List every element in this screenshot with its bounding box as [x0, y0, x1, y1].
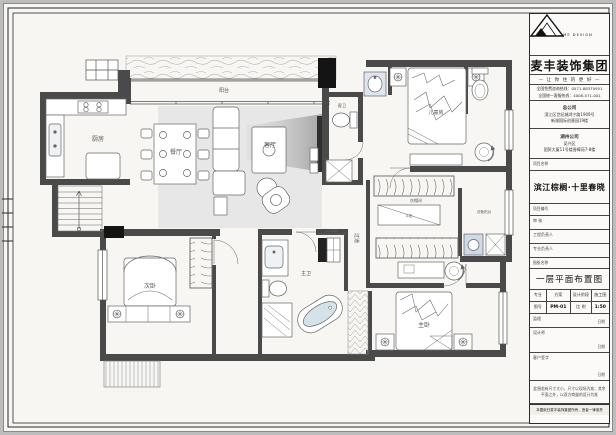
lead-row: 专业负责人	[530, 244, 609, 258]
room-label-kids: 儿童房	[428, 109, 443, 116]
branch-addr-line2: 国贸大厦11号楼香樟苑7-8楼	[544, 147, 596, 153]
title-block: MY HOME DESIGN 麦丰装饰集团 — 让 你 住 的 更 好 — 全国…	[529, 13, 610, 424]
table-cell-phase: 施工图	[592, 290, 609, 302]
supervisor-date-label: 日期	[597, 319, 605, 325]
branch-title: 湖州公司	[560, 134, 578, 141]
closet-hall	[374, 168, 466, 286]
room-label-second: 次卧	[144, 282, 156, 290]
bathtub	[293, 290, 347, 337]
second-bed	[124, 258, 176, 306]
room-label-living: 客厅	[264, 141, 276, 149]
floor-plan: 阳台 厨房 餐厅 客厅 客卫 斗柜 衣帽间 设备阳台 儿童房 主卧 次卧 主卫 …	[0, 0, 616, 435]
room-label-kitchen: 厨房	[92, 135, 104, 143]
client-date-label: 日期	[597, 372, 605, 378]
guest-bath	[326, 72, 386, 182]
table-cell-plan: 方案	[547, 290, 571, 302]
table-cell-discipline: 专业	[530, 290, 547, 302]
room-label-closet: 衣帽间	[410, 197, 423, 204]
table-cell-sheetno: PM-01	[547, 302, 571, 314]
drawing-name-label: 图纸名称	[530, 258, 609, 269]
herringbone-floor	[348, 291, 368, 354]
toilet-icon	[350, 112, 357, 128]
hotlines: 全国免费咨询热线：0571-88370951 全国统一客服热线：4008-571…	[530, 85, 609, 101]
designer-date-label: 日期	[597, 344, 605, 350]
review-row: 审 核	[530, 216, 609, 230]
shower-column	[318, 238, 327, 262]
kids-room	[390, 68, 495, 165]
ensuite-toilet	[472, 80, 488, 100]
hotline-2: 全国统一客服热线：4008-571-001	[538, 93, 601, 99]
sliding-window	[130, 102, 330, 105]
stairs	[58, 186, 102, 231]
second-door-arc	[214, 240, 238, 264]
second-wardrobe	[190, 238, 212, 288]
sofa	[213, 107, 239, 171]
drawing-sheet: 阳台 厨房 餐厅 客厅 客卫 斗柜 衣帽间 设备阳台 儿童房 主卧 次卧 主卫 …	[0, 0, 616, 435]
kitchen-furniture	[46, 99, 126, 179]
room-label-equipment: 设备阳台	[477, 209, 492, 214]
designer-label: 设计师	[533, 330, 545, 335]
pm-row: 工程负责人	[530, 230, 609, 244]
master-bed	[396, 292, 452, 350]
company-name: 麦丰装饰集团	[530, 56, 609, 75]
designer-sign: 设计师 日期	[530, 328, 609, 353]
elevation-marker: ±0.000	[325, 229, 339, 233]
room-label-guest-bath: 客卫	[338, 102, 346, 109]
room-label-master-bath: 主卫	[301, 270, 311, 277]
wardrobe-row-1	[374, 176, 454, 196]
hq-title: 总公司	[563, 105, 577, 112]
titleblock-logo: MY HOME DESIGN	[530, 14, 609, 56]
room-label-dining: 餐厅	[170, 148, 182, 156]
room-label-balcony: 阳台	[219, 87, 229, 94]
info-table: 专业 方案 设计阶段 施工图 图号 PM-01 比 例 1:50	[530, 290, 609, 314]
label-dresser: 斗柜	[405, 213, 413, 218]
room-label-corridor: 过道	[353, 233, 360, 243]
sink-icon	[49, 124, 61, 156]
supervisor-label: 监理	[533, 316, 541, 321]
bath-door-arc	[296, 232, 316, 252]
table-cell-phase-label: 设计阶段	[571, 290, 592, 302]
supervisor-sign: 监理 日期	[530, 314, 609, 328]
second-bedroom	[108, 238, 238, 322]
project-name-label: 项目名称	[530, 159, 609, 171]
client-label: 客户签字	[533, 355, 549, 360]
bath-toilet	[262, 280, 269, 297]
copyright-bar: 本图纸归麦丰装饰集团所有，违者一律追责	[530, 404, 609, 415]
master-bath	[262, 232, 347, 338]
hq-address: 总公司 滨江区世纪城鸿宁路1909号 新湖国际创意园19楼	[530, 101, 609, 129]
swivel-chair	[475, 143, 495, 161]
table-cell-scale-label: 比 例	[571, 302, 592, 314]
terrace-and-balcony	[126, 56, 336, 104]
stove-icon	[78, 101, 108, 113]
table-cell-scale: 1:50	[592, 302, 609, 314]
room-label-master: 主卧	[418, 321, 430, 329]
hq-addr-line2: 新湖国际创意园19楼	[551, 118, 588, 124]
project-name: 滨江棕榈·十里春晓	[530, 171, 609, 204]
branch-address: 湖州公司 吴兴区 国贸大厦11号楼香樟苑7-8楼	[530, 129, 609, 159]
client-sign: 客户签字 日期	[530, 353, 609, 381]
master-bedroom	[376, 292, 472, 350]
entry-steps	[104, 361, 160, 387]
coffee-table	[252, 127, 286, 173]
drawing-name: 一层平面布置图	[530, 269, 609, 290]
table-cell-sheetno-label: 图号	[530, 302, 547, 314]
wardrobe-row-2	[376, 238, 458, 258]
note-text: 此图若有尺寸大小，尺寸以现场为准；其余平面之外，以双方商量的设计为准	[530, 381, 609, 404]
flagstone-terrace	[126, 56, 336, 80]
equipment-balcony	[464, 234, 505, 255]
project-no-label: 项目编号	[530, 204, 609, 216]
company-slogan: — 让 你 住 的 更 好 —	[530, 75, 609, 85]
desk	[398, 262, 444, 278]
company-logo-icon	[530, 14, 564, 38]
